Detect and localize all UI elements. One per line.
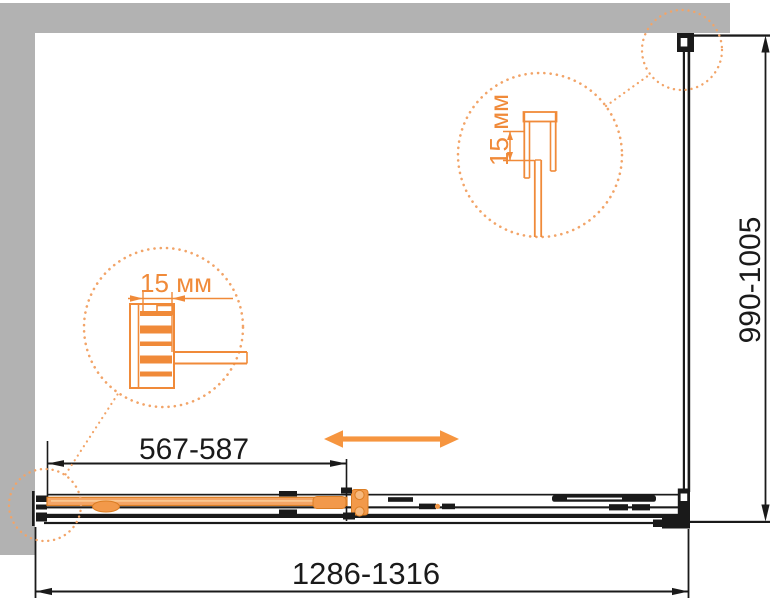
fixed-glass-clamp-1 [609,504,628,510]
fixed-glass-bar-slot [567,498,622,500]
fixed-glass-stub [388,497,413,502]
dim-width-label: 1286-1316 [292,556,440,591]
profile-left-edge [32,491,35,526]
side-glass-line-inner [688,51,691,492]
wall-bracket-left-1 [36,496,47,503]
top-bracket-slot [681,38,688,47]
width-dim-arrow-right [672,588,689,595]
shower-dimension-diagram: 990-1005 1286-1316 567-587 [0,0,770,600]
clamp-a-top [279,491,297,497]
clamp-b-bottom [343,513,355,520]
door-roller-left [93,501,120,512]
clamp-b-top [341,488,352,494]
detail-leader-left [66,395,118,475]
door-roller-right [313,497,346,509]
side-glass-line-outer [683,51,685,492]
profile-rail-bottom [44,522,690,524]
profile-rib [140,326,172,334]
wall-top [0,3,730,33]
fixed-glass-clamp-2 [632,504,650,510]
height-dim-arrow-down [761,505,769,522]
dim-door-label: 567-587 [139,433,249,466]
corner-bracket-step [653,520,662,528]
carrier-wheel-top [355,490,364,499]
door-dim-arrow-right [330,460,347,467]
corner-bracket-foot [662,518,690,529]
door-dim-arrow-left [48,460,65,467]
door-panel-highlight [51,500,343,502]
detail-circle-right [458,73,622,237]
width-dimension: 1286-1316 [36,527,689,598]
slide-arrow-head-right [440,430,459,448]
diagram-svg: 990-1005 1286-1316 567-587 [0,0,770,600]
detail-right-top-bar [524,112,557,122]
slide-arrow-head-left [324,430,343,448]
detail-left-label: 15 мм [140,268,212,298]
height-dimension: 990-1005 [690,36,770,524]
slide-arrow-shaft [341,436,443,441]
profile-rib [140,342,172,347]
detail-leader-right [606,74,651,106]
wall-bracket-left-2 [36,505,47,510]
height-dim-extension-line [690,521,770,523]
track-stop-2 [442,504,455,510]
double-headed-arrow-icon [324,430,459,448]
profile-rib [140,372,172,377]
width-dim-arrow-left [36,588,53,595]
height-dim-arrow-up [761,36,769,53]
profile-rib [140,356,172,364]
top-extension-line [692,34,770,36]
bottom-profile-assembly [32,488,690,529]
track-stop-roller [435,504,440,509]
clamp-a-bottom [279,510,297,518]
carrier-wheel-bottom [355,507,364,516]
track-stop-1 [419,504,436,510]
corner-bracket-slot [681,494,688,502]
dim-height-label: 990-1005 [734,217,767,344]
